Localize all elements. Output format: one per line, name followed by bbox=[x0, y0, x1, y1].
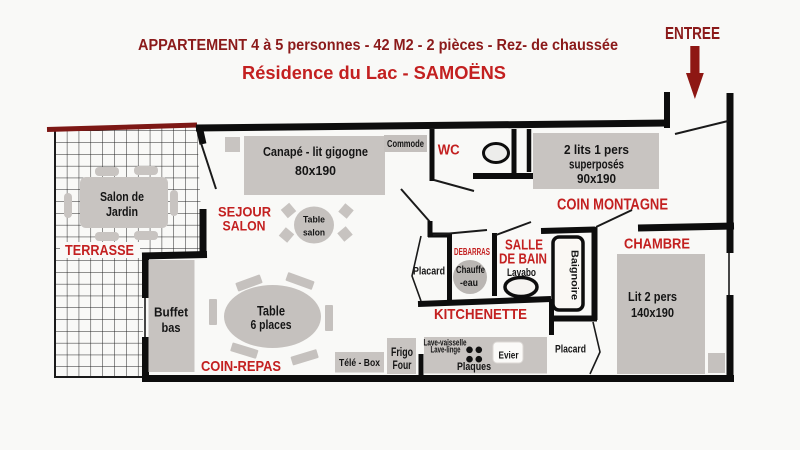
svg-text:6 places: 6 places bbox=[251, 317, 292, 332]
svg-text:Placard: Placard bbox=[555, 344, 586, 356]
svg-text:Baignoire: Baignoire bbox=[569, 250, 580, 300]
svg-text:-eau: -eau bbox=[460, 277, 478, 289]
svg-text:Commode: Commode bbox=[387, 139, 424, 150]
svg-text:Lave-linge: Lave-linge bbox=[431, 345, 461, 355]
svg-text:Chauffe: Chauffe bbox=[456, 264, 485, 276]
svg-text:DEBARRAS: DEBARRAS bbox=[454, 246, 490, 258]
svg-text:Buffet: Buffet bbox=[154, 305, 189, 320]
svg-text:Résidence du Lac - SAMOËNS: Résidence du Lac - SAMOËNS bbox=[242, 63, 506, 83]
svg-text:CHAMBRE: CHAMBRE bbox=[624, 236, 690, 253]
svg-text:Table: Table bbox=[303, 215, 325, 225]
svg-text:TERRASSE: TERRASSE bbox=[65, 242, 134, 259]
svg-text:Télé - Box: Télé - Box bbox=[339, 357, 380, 369]
svg-text:Lit 2 pers: Lit 2 pers bbox=[628, 290, 677, 304]
svg-text:Placard: Placard bbox=[413, 266, 445, 278]
svg-text:80x190: 80x190 bbox=[295, 163, 336, 178]
svg-text:Salon de: Salon de bbox=[100, 189, 144, 204]
svg-text:90x190: 90x190 bbox=[577, 172, 616, 186]
svg-text:Canapé - lit gigogne: Canapé - lit gigogne bbox=[263, 144, 368, 159]
svg-text:140x190: 140x190 bbox=[631, 306, 674, 320]
svg-text:APPARTEMENT 4 à 5 personnes -: APPARTEMENT 4 à 5 personnes - 42 M2 - 2 … bbox=[138, 37, 618, 54]
svg-text:COIN-REPAS: COIN-REPAS bbox=[201, 358, 281, 375]
svg-text:KITCHENETTE: KITCHENETTE bbox=[434, 306, 527, 323]
svg-text:SALON: SALON bbox=[223, 218, 266, 234]
svg-text:DE BAIN: DE BAIN bbox=[499, 252, 547, 268]
svg-text:ENTREE: ENTREE bbox=[665, 23, 720, 43]
svg-text:Four: Four bbox=[393, 360, 412, 372]
svg-text:Jardin: Jardin bbox=[106, 204, 138, 219]
svg-text:Frigo: Frigo bbox=[391, 347, 413, 359]
svg-text:superposés: superposés bbox=[569, 158, 624, 172]
svg-text:salon: salon bbox=[303, 228, 325, 238]
svg-text:2 lits 1 pers: 2 lits 1 pers bbox=[564, 143, 629, 157]
svg-text:bas: bas bbox=[162, 320, 181, 335]
svg-text:Plaques: Plaques bbox=[457, 361, 491, 373]
svg-text:WC: WC bbox=[438, 143, 460, 159]
svg-text:COIN MONTAGNE: COIN MONTAGNE bbox=[557, 197, 668, 214]
svg-text:Evier: Evier bbox=[499, 351, 519, 362]
